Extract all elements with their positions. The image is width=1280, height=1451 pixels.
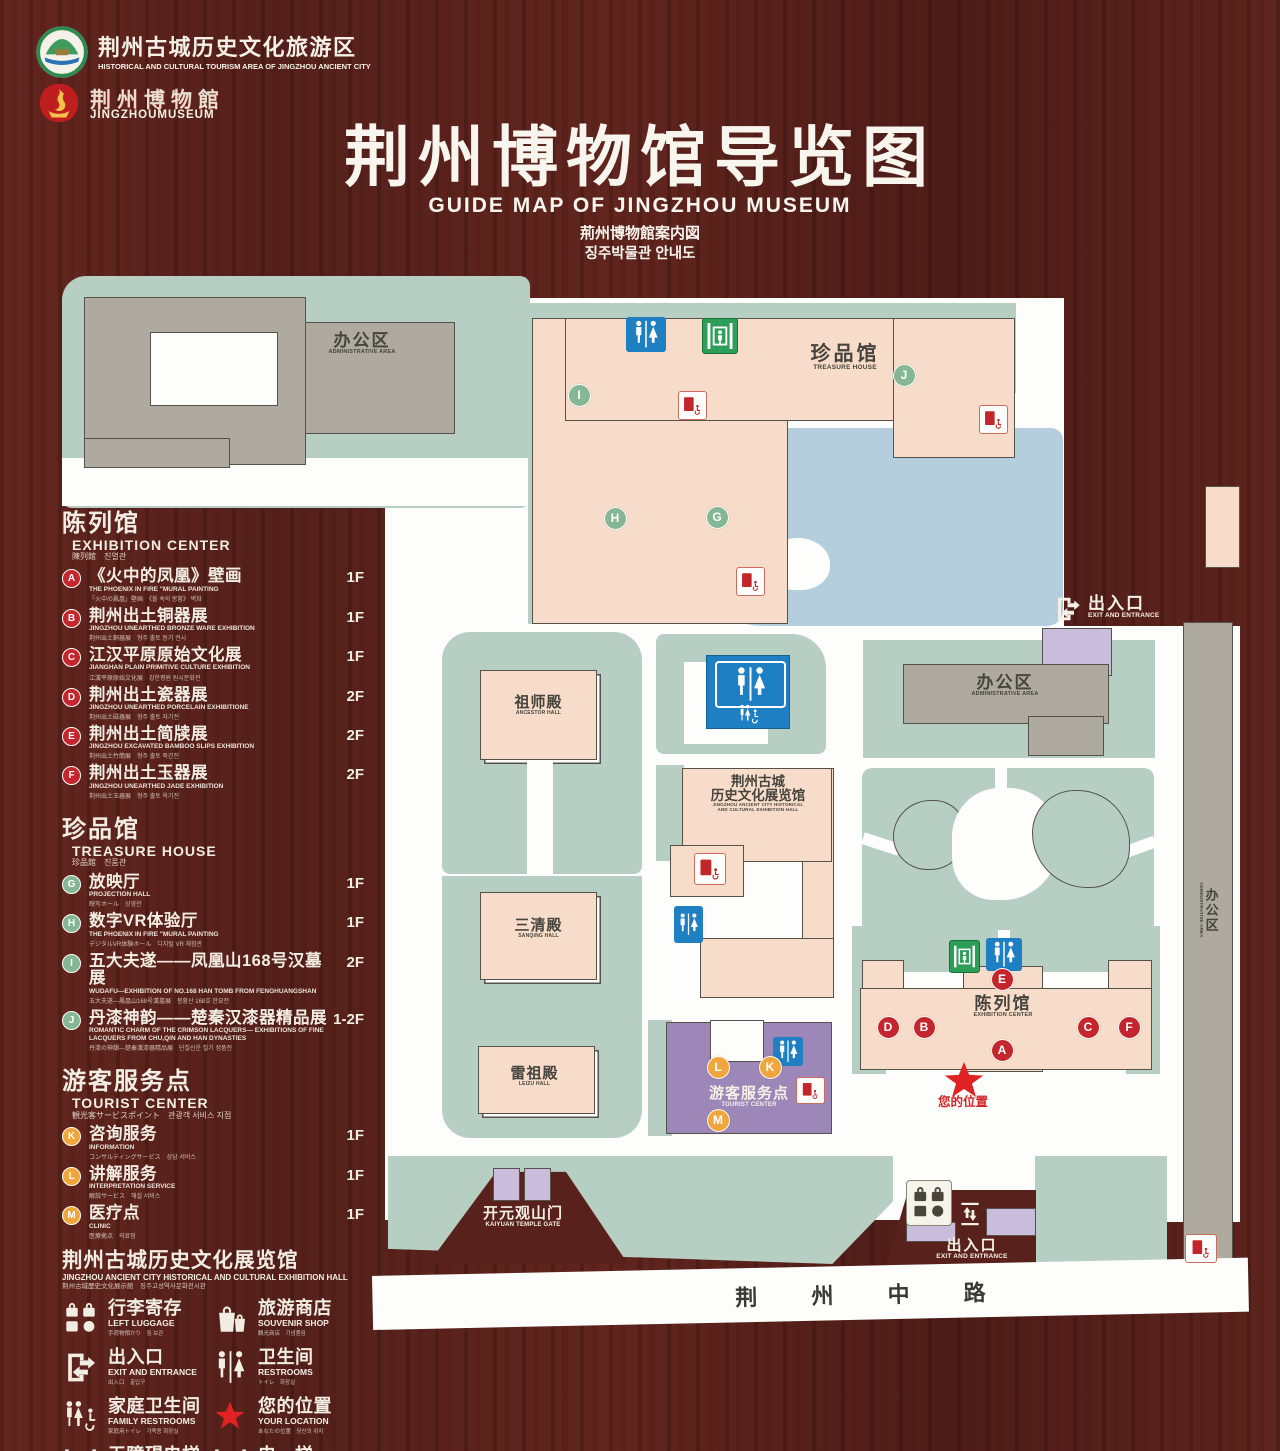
legend-symbol-name-sub: 家庭用トイレ 가족용 화장실	[108, 1427, 212, 1435]
legend-item-name-en: ROMANTIC CHARM OF THE CRIMSON LACQUERS— …	[89, 1027, 328, 1043]
legend-item-name: 荆州出土玉器展	[89, 765, 328, 782]
legend-sections: 陈列馆EXHIBITION CENTER陳列館 진열관A《火中的凤凰》壁画THE…	[62, 503, 364, 1240]
legend-symbol-name: 旅游商店	[258, 1299, 362, 1319]
legend-item-name-sub: 映写ホール 상영관	[89, 899, 328, 908]
accessible-elevator-icon	[678, 391, 707, 420]
map-marker-I: I	[568, 384, 591, 407]
legend-symbol-name: 卫生间	[258, 1348, 362, 1368]
legend-item-name: 荆州出土瓷器展	[89, 687, 328, 704]
map-marker-G: G	[706, 506, 729, 529]
left-luggage-icon	[906, 1180, 952, 1226]
legend-item-name-sub: 医療拠点 의료점	[89, 1231, 328, 1240]
exhibition-hall-label: 荆州古城 历史文化展览馆 JINGZHOU ANCIENT CITY HISTO…	[688, 775, 828, 813]
page-title-en: GUIDE MAP OF JINGZHOU MUSEUM	[0, 194, 1280, 218]
legend-symbol: 电 梯ELEVATORエレベーター 엘리베이터	[212, 1446, 362, 1451]
legend-item-name-en: INFORMATION	[89, 1144, 328, 1152]
legend-symbol: 旅游商店SOUVENIR SHOP観光商店 기념품점	[212, 1299, 362, 1348]
legend-item-floor: 1F	[346, 1206, 364, 1223]
legend-section-subtitles: EXHIBITION CENTER陳列館 진열관	[72, 538, 231, 562]
page-title: 荆州博物馆导览图	[0, 104, 1280, 200]
legend-item-name: 荆州出土铜器展	[89, 608, 328, 625]
legend-section-title: 陈列馆	[62, 503, 364, 538]
legend-section-title: 珍品馆	[62, 809, 364, 844]
legend-item-name-sub: 丹漆の神韻—楚秦漢漆器精品展 단칠신운 칠기 정품전	[89, 1043, 328, 1052]
legend-section-title-sub: 陳列館 진열관	[72, 553, 231, 562]
legend-item-name-en: JINGZHOU UNEARTHED PORCELAIN EXHIBITIONE	[89, 704, 328, 712]
legend-item-badge: L	[62, 1167, 81, 1186]
legend-item-floor: 1F	[346, 1167, 364, 1184]
exit-top-label: 出入口 EXIT AND ENTRANCE	[1088, 595, 1218, 620]
accessible-elevator-icon	[1185, 1234, 1217, 1263]
kaiyuan-gate-tower	[524, 1168, 551, 1201]
legend-section-subtitles: TOURIST CENTER観光客サービスポイント 관광객 서비스 지점	[72, 1096, 231, 1120]
legend-item-floor: 2F	[346, 688, 364, 705]
note-title: 荆州古城历史文化展览馆	[62, 1249, 364, 1274]
legend-item-name: 《火中的凤凰》壁画	[89, 568, 328, 585]
admin-area-label: 办公区 ADMINISTRATIVE AREA	[292, 332, 432, 356]
corridor	[527, 760, 553, 876]
map-marker-H: H	[604, 507, 627, 530]
tourism-area-logo-icon	[34, 24, 90, 85]
map-marker-L: L	[707, 1056, 730, 1079]
legend-section-title-en: TOURIST CENTER	[72, 1096, 231, 1111]
legend-item-badge: J	[62, 1011, 81, 1030]
legend-item-badge: I	[62, 954, 81, 973]
legend-item-name: 放映厅	[89, 874, 328, 891]
legend-item-name-en: WUDAFU—EXHIBITION OF NO.168 HAN TOMB FRO…	[89, 988, 328, 996]
legend-item-badge: D	[62, 688, 81, 707]
legend-symbol-name-sub: 出入口 출입구	[108, 1378, 212, 1386]
legend-item-name-en: JIANGHAN PLAIN PRIMITIVE CULTURE EXHIBIT…	[89, 664, 328, 672]
legend-section-title-sub: 珍品館 진품관	[72, 859, 217, 868]
legend-item-name: 荆州出土简牍展	[89, 726, 328, 743]
legend-item-name-en: JINGZHOU UNEARTHED BRONZE WARE EXHIBITIO…	[89, 625, 328, 633]
map-marker-D: D	[877, 1016, 900, 1039]
legend-item-floor: 1F	[346, 914, 364, 931]
restrooms-icon	[626, 317, 666, 352]
legend-symbol-name: 无障碍电梯	[108, 1446, 212, 1451]
legend-symbol: 行李寄存LEFT LUGGAGE手荷物預かり 짐 보관	[62, 1299, 212, 1348]
sanqing-hall-label: 三清殿 SANQING HALL	[486, 918, 591, 939]
legend-section-header: 游客服务点TOURIST CENTER観光客サービスポイント 관광객 서비스 지…	[62, 1061, 364, 1120]
south-gate-building	[986, 1208, 1036, 1236]
map-legend: 陈列馆EXHIBITION CENTER陳列館 진열관A《火中的凤凰》壁画THE…	[62, 503, 364, 1451]
restrooms-icon	[715, 661, 786, 708]
legend-item-name-sub: 「火中の鳳凰」壁画 《불 속의 봉황》 벽화	[89, 594, 328, 603]
family-restrooms-icon	[62, 1398, 99, 1435]
legend-item: M医疗点CLINIC医療拠点 의료점1F	[62, 1205, 364, 1239]
map-marker-C: C	[1077, 1016, 1100, 1039]
tourism-area-name: 荆州古城历史文化旅游区	[98, 30, 357, 62]
map-marker-B: B	[913, 1016, 936, 1039]
legend-item-name: 五大夫遂——凤凰山168号汉墓展	[89, 953, 328, 988]
legend-item: B荆州出土铜器展JINGZHOU UNEARTHED BRONZE WARE E…	[62, 608, 364, 642]
legend-symbol: 卫生间RESTROOMSトイレ 화장실	[212, 1348, 362, 1397]
admin-east-label: 办公区 ADMINISTRATIVE AREA	[935, 674, 1075, 698]
legend-symbol-name-en: SOUVENIR SHOP	[258, 1318, 362, 1328]
legend-item: E荆州出土简牍展JINGZHOU EXCAVATED BAMBOO SLIPS …	[62, 726, 364, 760]
map-marker-A: A	[991, 1039, 1014, 1062]
legend-item-name-en: CLINIC	[89, 1223, 328, 1231]
map-marker-M: M	[707, 1109, 730, 1132]
legend-item: I五大夫遂——凤凰山168号汉墓展WUDAFU—EXHIBITION OF NO…	[62, 953, 364, 1005]
legend-item-badge: B	[62, 609, 81, 628]
legend-item: J丹漆神韵——楚秦汉漆器精品展ROMANTIC CHARM OF THE CRI…	[62, 1010, 364, 1053]
legend-item-badge: A	[62, 569, 81, 588]
legend-item-floor: 2F	[346, 954, 364, 971]
legend-symbols-grid: 行李寄存LEFT LUGGAGE手荷物預かり 짐 보관旅游商店SOUVENIR …	[62, 1299, 364, 1451]
legend-item: G放映厅PROJECTION HALL映写ホール 상영관1F	[62, 874, 364, 908]
legend-symbol-name-en: RESTROOMS	[258, 1367, 362, 1377]
legend-item-name-en: PROJECTION HALL	[89, 891, 328, 899]
legend-item-name-sub: 荆州出土銅器展 형주 출토 동기 전시	[89, 633, 328, 642]
left-luggage-icon	[62, 1300, 99, 1337]
treasure-house-east-block	[893, 318, 1015, 458]
legend-item-name-en: JINGZHOU EXCAVATED BAMBOO SLIPS EXHIBITI…	[89, 743, 328, 751]
exit-entrance-icon	[62, 1349, 99, 1386]
legend-section-header: 陈列馆EXHIBITION CENTER陳列館 진열관	[62, 503, 364, 562]
legend-symbol-name: 电 梯	[258, 1446, 362, 1451]
restrooms-icon	[212, 1349, 249, 1386]
legend-symbol-name-sub: あなたの位置 당신의 위치	[258, 1427, 362, 1435]
legend-section-header: 珍品馆TREASURE HOUSE珍品館 진품관	[62, 809, 364, 868]
legend-item-name: 江汉平原原始文化展	[89, 647, 328, 664]
legend-symbol-name-en: FAMILY RESTROOMS	[108, 1416, 212, 1426]
legend-item-floor: 1F	[346, 875, 364, 892]
legend-item: H数字VR体验厅THE PHOENIX IN FIRE "MURAL PAINT…	[62, 913, 364, 947]
display-sliver-east	[1205, 486, 1240, 568]
legend-item-badge: F	[62, 766, 81, 785]
elevator-icon	[949, 940, 980, 973]
legend-item-floor: 1-2F	[333, 1011, 364, 1028]
legend-symbol: 出入口EXIT AND ENTRANCE出入口 출입구	[62, 1348, 212, 1397]
admin-courtyard	[150, 332, 278, 406]
page-title-ja: 荊州博物館案内図	[0, 222, 1280, 243]
legend-item-name: 数字VR体验厅	[89, 913, 328, 930]
legend-item: C江汉平原原始文化展JIANGHAN PLAIN PRIMITIVE CULTU…	[62, 647, 364, 681]
map-marker-K: K	[759, 1056, 782, 1079]
legend-item-floor: 1F	[346, 1127, 364, 1144]
legend-item-name-en: THE PHOENIX IN FIRE "MURAL PAINTING	[89, 586, 328, 594]
note-title-en: JINGZHOU ANCIENT CITY HISTORICAL AND CUL…	[62, 1273, 364, 1283]
kaiyuan-gate-label: 开元观山门 KAIYUAN TEMPLE GATE	[443, 1206, 603, 1228]
legend-item-badge: C	[62, 648, 81, 667]
legend-item-name: 咨询服务	[89, 1126, 328, 1143]
exhibition-center-label: 陈列馆 EXHIBITION CENTER	[940, 995, 1066, 1019]
family-restrooms-icon	[722, 703, 776, 726]
ancestor-hall-label: 祖师殿 ANCESTOR HALL	[486, 695, 591, 716]
legend-item: A《火中的凤凰》壁画THE PHOENIX IN FIRE "MURAL PAI…	[62, 568, 364, 602]
accessible-elevator-icon	[796, 1077, 825, 1104]
leizu-hall-label: 雷祖殿 LEIZU HALL	[482, 1066, 587, 1087]
legend-symbol-name: 出入口	[108, 1348, 212, 1368]
souvenir-shop-icon	[212, 1300, 249, 1337]
kaiyuan-gate-tower	[493, 1168, 520, 1201]
elevator-icon	[212, 1447, 249, 1451]
accessible-elevator-icon	[979, 405, 1008, 434]
guide-map-poster: 荆州古城历史文化旅游区 HISTORICAL AND CULTURAL TOUR…	[0, 0, 1280, 1451]
legend-item-name-sub: 荆州出土磁器展 형주 출토 자기전	[89, 712, 328, 721]
road-label: 荆 州 中 路	[672, 1273, 1073, 1313]
accessible-elevator-icon	[694, 853, 726, 885]
legend-symbol: 无障碍电梯ACCESSIBLE ELEVATORバリアフリーエレベーター 장애인…	[62, 1446, 212, 1451]
elevator-icon	[702, 318, 738, 354]
accessible-elevator-icon	[736, 567, 765, 596]
legend-symbol: 您的位置YOUR LOCATIONあなたの位置 당신의 위치	[212, 1397, 362, 1446]
your-location-label: 您的位置	[923, 1096, 1003, 1109]
legend-item-name-sub: デジタルVR体験ホール 디지털 VR 체험관	[89, 939, 328, 948]
legend-item-floor: 2F	[346, 766, 364, 783]
legend-exhibition-hall-note: 荆州古城历史文化展览馆 JINGZHOU ANCIENT CITY HISTOR…	[62, 1249, 364, 1291]
restrooms-icon	[674, 906, 703, 943]
legend-symbol: 家庭卫生间FAMILY RESTROOMS家庭用トイレ 가족용 화장실	[62, 1397, 212, 1446]
legend-section: 陈列馆EXHIBITION CENTER陳列館 진열관A《火中的凤凰》壁画THE…	[62, 503, 364, 800]
legend-symbol-name: 行李寄存	[108, 1299, 212, 1319]
exit-ud-icon	[956, 1198, 984, 1230]
legend-section: 珍品馆TREASURE HOUSE珍品館 진품관G放映厅PROJECTION H…	[62, 809, 364, 1052]
legend-item-name-en: INTERPRETATION SERVICE	[89, 1183, 328, 1191]
legend-item-badge: E	[62, 727, 81, 746]
legend-item: D荆州出土瓷器展JINGZHOU UNEARTHED PORCELAIN EXH…	[62, 687, 364, 721]
legend-item-name: 丹漆神韵——楚秦汉漆器精品展	[89, 1010, 328, 1027]
legend-item-name: 医疗点	[89, 1205, 328, 1222]
admin-building-east-annex	[1028, 716, 1104, 756]
legend-item-name-sub: コンサルティングサービス 상담 서비스	[89, 1152, 328, 1161]
map-marker-J: J	[893, 364, 916, 387]
legend-item-name-sub: 五大夫遂—鳳凰山168号漢墓展 봉황산 168호 한묘전	[89, 996, 328, 1005]
south-grounds-east	[1035, 1156, 1167, 1272]
legend-section-title-sub: 観光客サービスポイント 관광객 서비스 지점	[72, 1112, 231, 1121]
legend-item-name-sub: 江漢平原原始文化展 강한평원 원시문화전	[89, 673, 328, 682]
legend-section: 游客服务点TOURIST CENTER観光客サービスポイント 관광객 서비스 지…	[62, 1061, 364, 1240]
legend-item-floor: 1F	[346, 648, 364, 665]
legend-item-floor: 1F	[346, 569, 364, 586]
legend-item-name-sub: 解説サービス 해설 서비스	[89, 1191, 328, 1200]
note-title-sub: 荆州古城歴史文化展示館 징주고성역사문화전시관	[62, 1283, 364, 1291]
legend-symbol-name-en: EXIT AND ENTRANCE	[108, 1367, 212, 1377]
legend-item-name-sub: 荆州出土玉器展 형주 출토 옥기전	[89, 791, 328, 800]
legend-item-name-en: JINGZHOU UNEARTHED JADE EXHIBITION	[89, 783, 328, 791]
legend-section-subtitles: TREASURE HOUSE珍品館 진품관	[72, 844, 217, 868]
page-title-ko: 징주박물관 안내도	[0, 242, 1280, 263]
exhibition-hall-south-wing	[700, 938, 834, 998]
legend-symbol-name-en: YOUR LOCATION	[258, 1416, 362, 1426]
legend-item-badge: M	[62, 1206, 81, 1225]
legend-item-name-en: THE PHOENIX IN FIRE "MURAL PAINTING	[89, 931, 328, 939]
map-marker-F: F	[1118, 1016, 1141, 1039]
exit-lr-icon	[1053, 594, 1083, 624]
legend-item-name: 讲解服务	[89, 1166, 328, 1183]
map-marker-E: E	[991, 968, 1014, 991]
accessible-elevator-icon	[62, 1447, 99, 1451]
legend-symbol-name-sub: トイレ 화장실	[258, 1378, 362, 1386]
tourism-area-name-en: HISTORICAL AND CULTURAL TOURISM AREA OF …	[98, 62, 371, 71]
legend-item-name-sub: 荆州出土竹簡展 형주 출토 죽간전	[89, 751, 328, 760]
legend-item: F荆州出土玉器展JINGZHOU UNEARTHED JADE EXHIBITI…	[62, 765, 364, 799]
legend-item-floor: 1F	[346, 609, 364, 626]
legend-symbol-name-en: LEFT LUGGAGE	[108, 1318, 212, 1328]
jingzhou-middle-road: 荆 州 中 路	[372, 1258, 1249, 1330]
legend-item: L讲解服务INTERPRETATION SERVICE解説サービス 해설 서비스…	[62, 1166, 364, 1200]
legend-symbol-name: 家庭卫生间	[108, 1397, 212, 1417]
legend-item: K咨询服务INFORMATIONコンサルティングサービス 상담 서비스1F	[62, 1126, 364, 1160]
legend-section-title: 游客服务点	[62, 1061, 364, 1096]
your-location-icon	[212, 1398, 249, 1435]
exit-bottom-label: 出入口 EXIT AND ENTRANCE	[912, 1238, 1032, 1261]
legend-symbol-name: 您的位置	[258, 1397, 362, 1417]
legend-section-title-en: TREASURE HOUSE	[72, 844, 217, 859]
restrooms-icon	[986, 938, 1022, 971]
legend-symbol-name-sub: 手荷物預かり 짐 보관	[108, 1329, 212, 1337]
legend-item-badge: G	[62, 875, 81, 894]
admin-building-west-foot	[84, 438, 230, 468]
admin-strip-label: ADMINISTRATIVE AREA 办公区	[1186, 810, 1230, 1010]
legend-item-badge: H	[62, 914, 81, 933]
legend-item-floor: 2F	[346, 727, 364, 744]
legend-item-badge: K	[62, 1127, 81, 1146]
legend-symbol-name-sub: 観光商店 기념품점	[258, 1329, 362, 1337]
